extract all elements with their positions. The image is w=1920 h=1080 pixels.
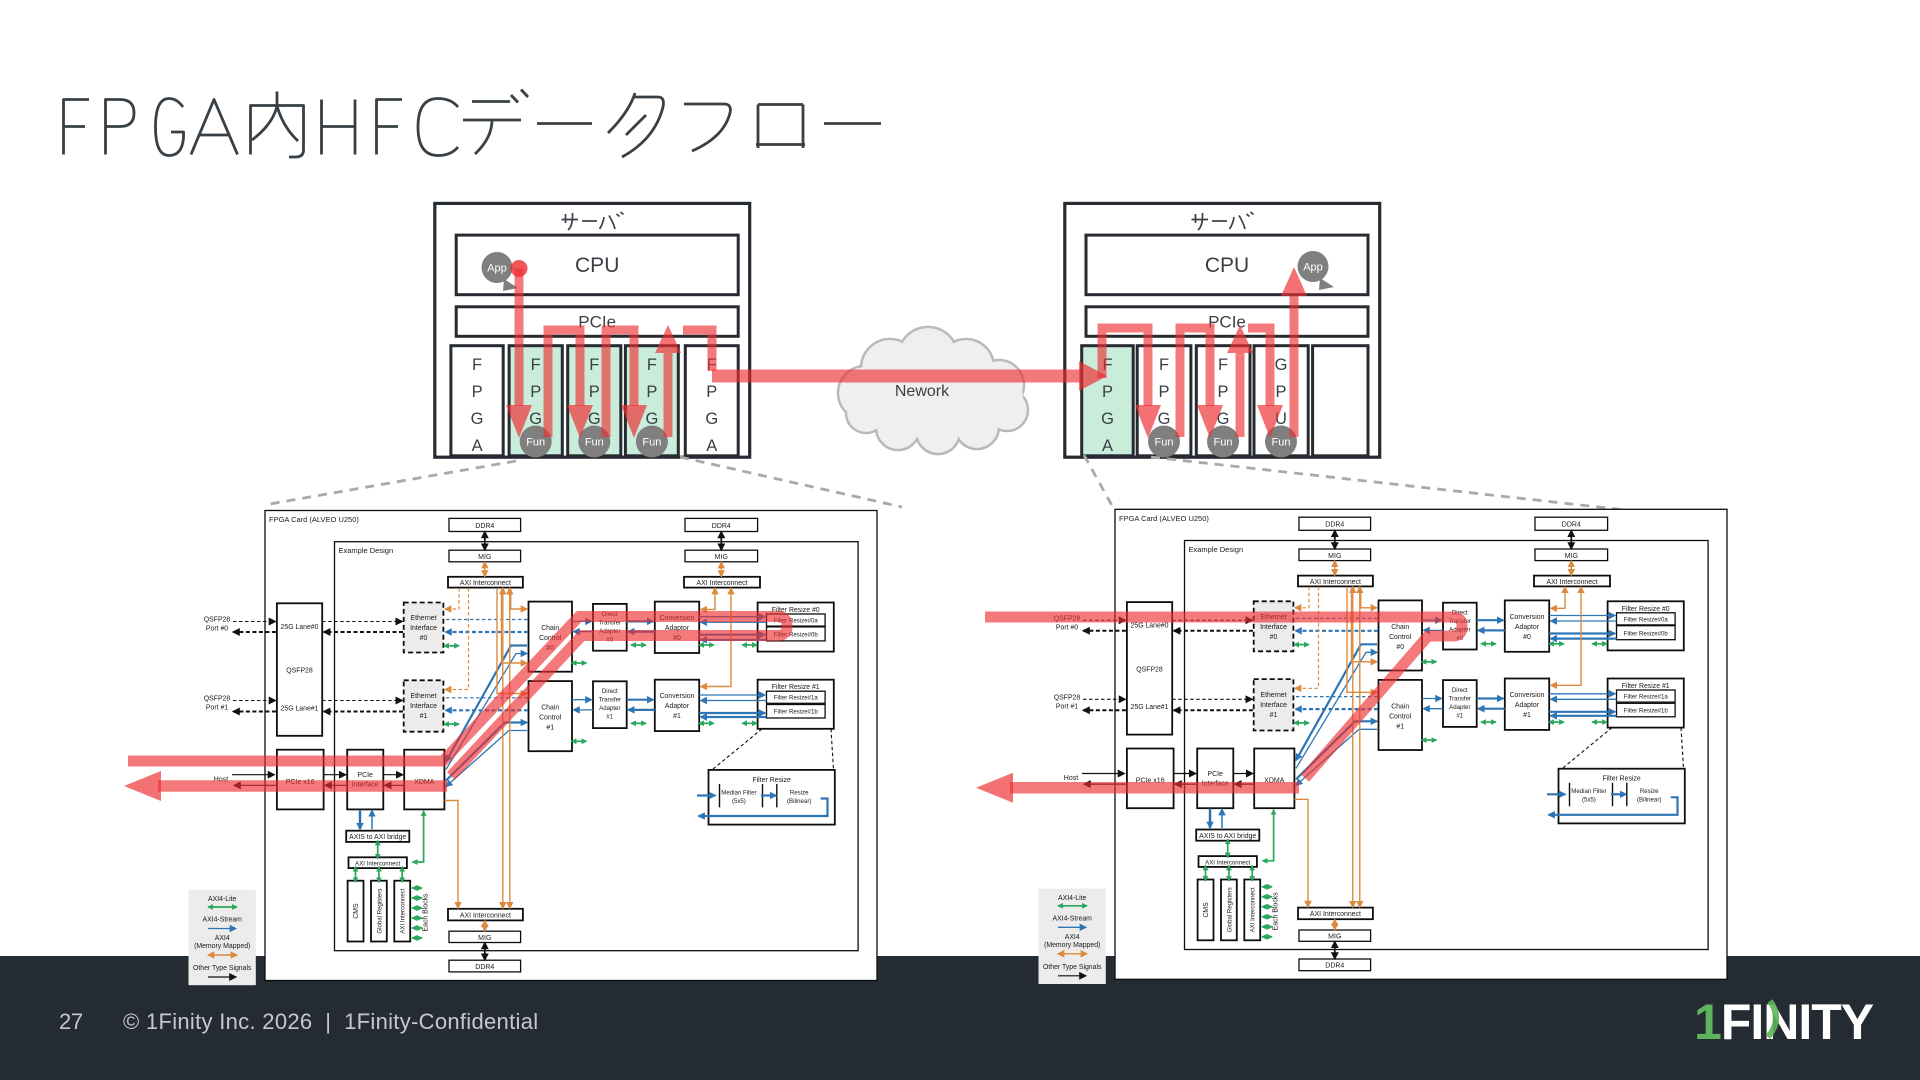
svg-text:G: G bbox=[645, 410, 658, 428]
svg-text:G: G bbox=[471, 410, 484, 428]
svg-text:G: G bbox=[1275, 356, 1288, 374]
svg-text:A: A bbox=[706, 437, 717, 455]
svg-text:F: F bbox=[647, 356, 657, 374]
svg-text:F: F bbox=[531, 356, 541, 374]
svg-text:P: P bbox=[1275, 383, 1286, 401]
svg-text:Fun: Fun bbox=[642, 437, 661, 449]
svg-text:F: F bbox=[589, 356, 599, 374]
svg-text:G: G bbox=[705, 410, 718, 428]
svg-text:Fun: Fun bbox=[526, 437, 545, 449]
svg-text:F: F bbox=[1159, 356, 1169, 374]
svg-text:CPU: CPU bbox=[575, 254, 619, 277]
svg-text:App: App bbox=[487, 263, 507, 275]
svg-text:Fun: Fun bbox=[1214, 437, 1233, 449]
svg-text:A: A bbox=[472, 437, 483, 455]
svg-text:P: P bbox=[1217, 383, 1228, 401]
svg-text:P: P bbox=[646, 383, 657, 401]
svg-text:A: A bbox=[1102, 437, 1113, 455]
svg-text:Fun: Fun bbox=[1272, 437, 1291, 449]
svg-text:P: P bbox=[1158, 383, 1169, 401]
svg-text:P: P bbox=[706, 383, 717, 401]
svg-text:G: G bbox=[1101, 410, 1114, 428]
svg-text:Fun: Fun bbox=[585, 437, 604, 449]
svg-text:Fun: Fun bbox=[1155, 437, 1174, 449]
svg-text:G: G bbox=[1158, 410, 1171, 428]
svg-text:F: F bbox=[472, 356, 482, 374]
svg-text:P: P bbox=[472, 383, 483, 401]
svg-text:Nework: Nework bbox=[895, 383, 950, 400]
svg-text:G: G bbox=[529, 410, 542, 428]
svg-text:P: P bbox=[589, 383, 600, 401]
svg-text:CPU: CPU bbox=[1205, 254, 1249, 277]
svg-text:F: F bbox=[1218, 356, 1228, 374]
svg-text:P: P bbox=[1102, 383, 1113, 401]
svg-text:P: P bbox=[530, 383, 541, 401]
svg-text:App: App bbox=[1303, 262, 1323, 274]
